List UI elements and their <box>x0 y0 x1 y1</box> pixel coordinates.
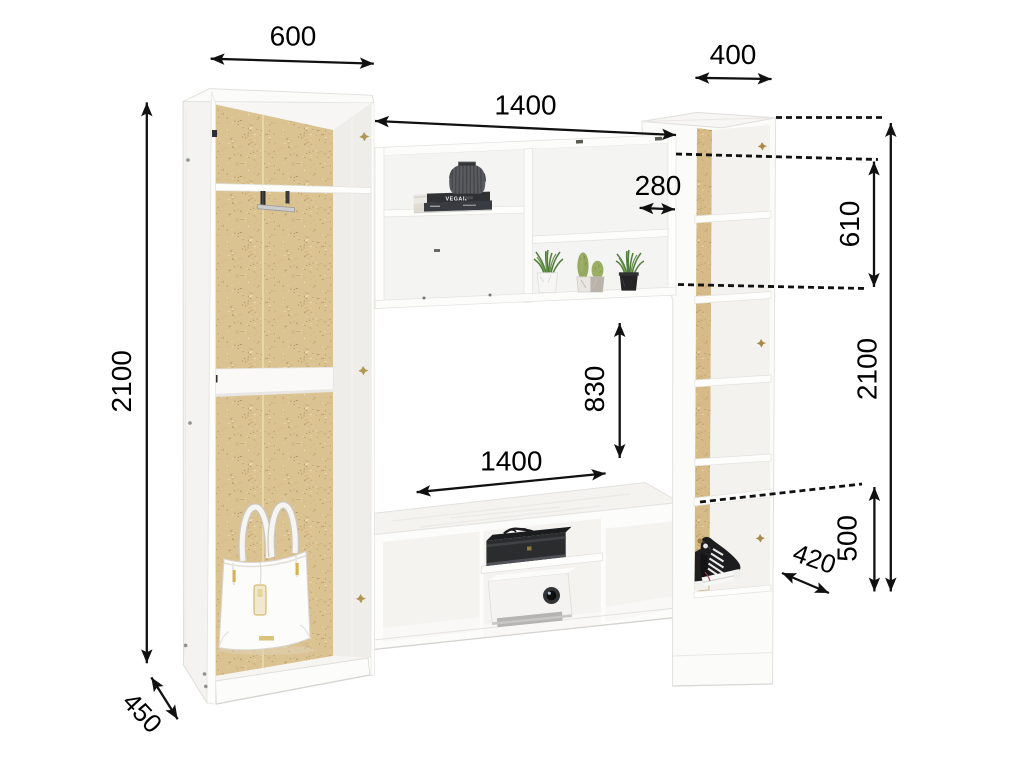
svg-text:830: 830 <box>579 366 610 413</box>
svg-text:600: 600 <box>270 21 317 52</box>
svg-text:1400: 1400 <box>480 445 542 476</box>
svg-text:1400: 1400 <box>494 89 556 120</box>
svg-text:2100: 2100 <box>106 350 137 412</box>
svg-text:400: 400 <box>710 39 757 70</box>
svg-text:2100: 2100 <box>852 338 883 400</box>
svg-text:280: 280 <box>635 170 682 201</box>
svg-text:610: 610 <box>834 201 865 248</box>
